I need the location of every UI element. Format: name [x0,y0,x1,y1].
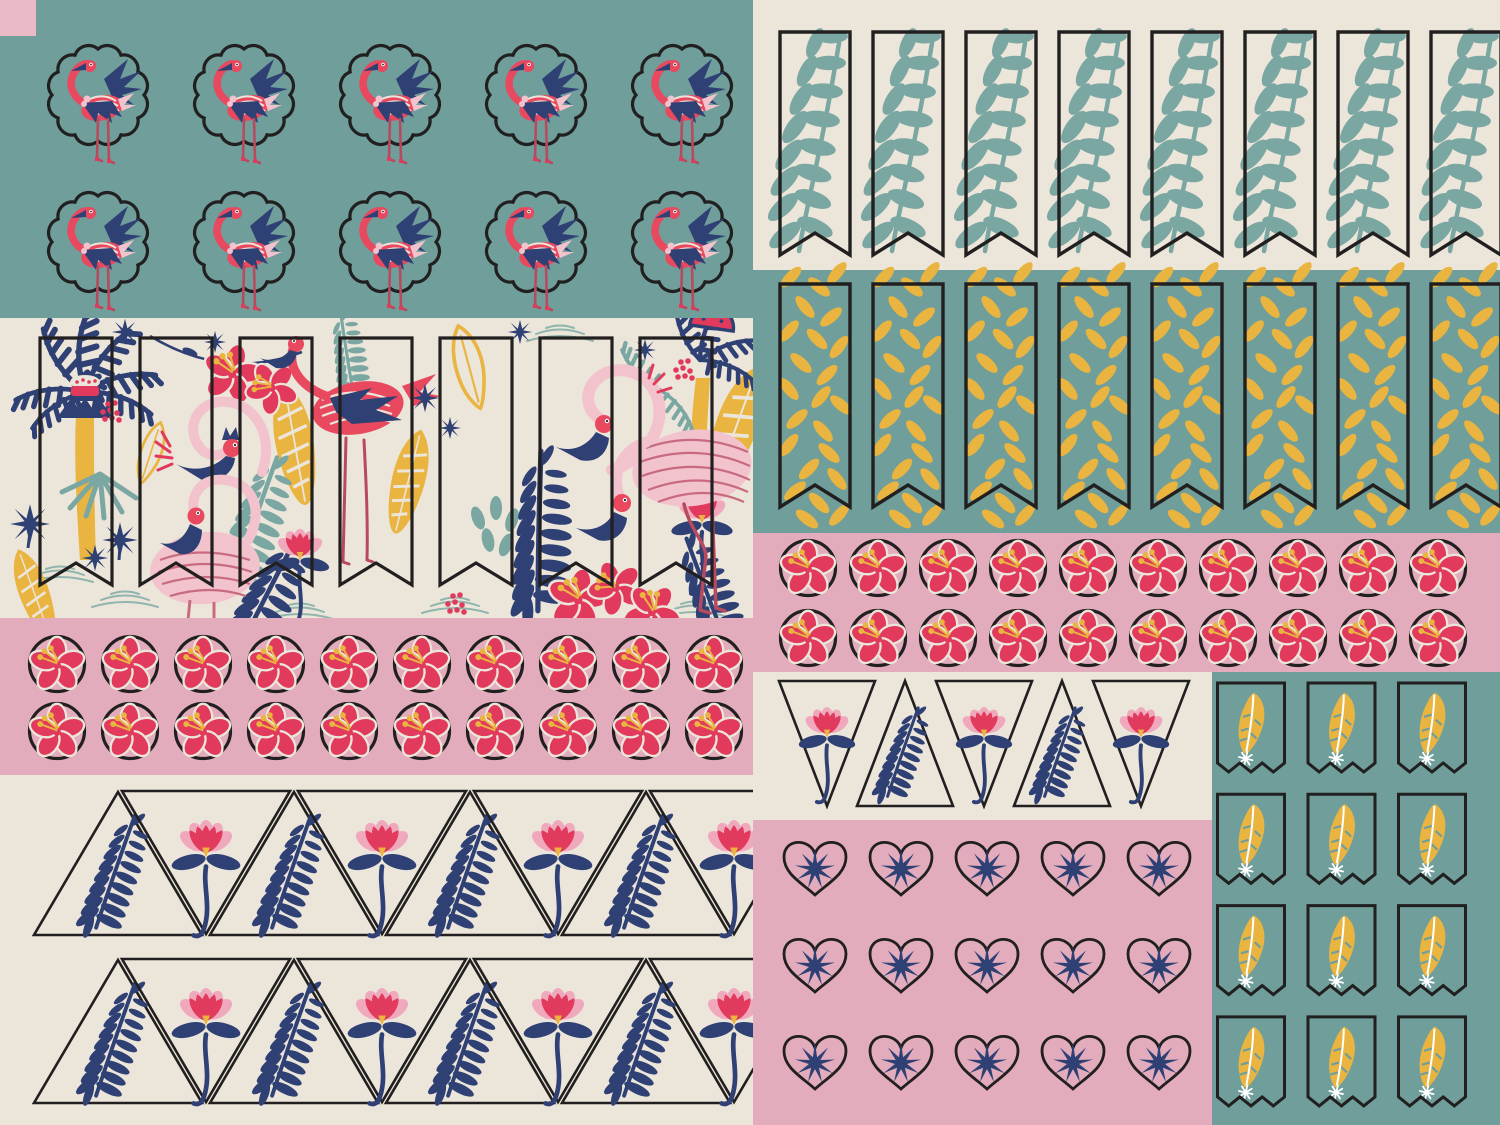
sticker-sheet [0,0,1500,1125]
sheet-canvas [0,0,1500,1125]
panel-pink-corner-patch [0,0,36,36]
